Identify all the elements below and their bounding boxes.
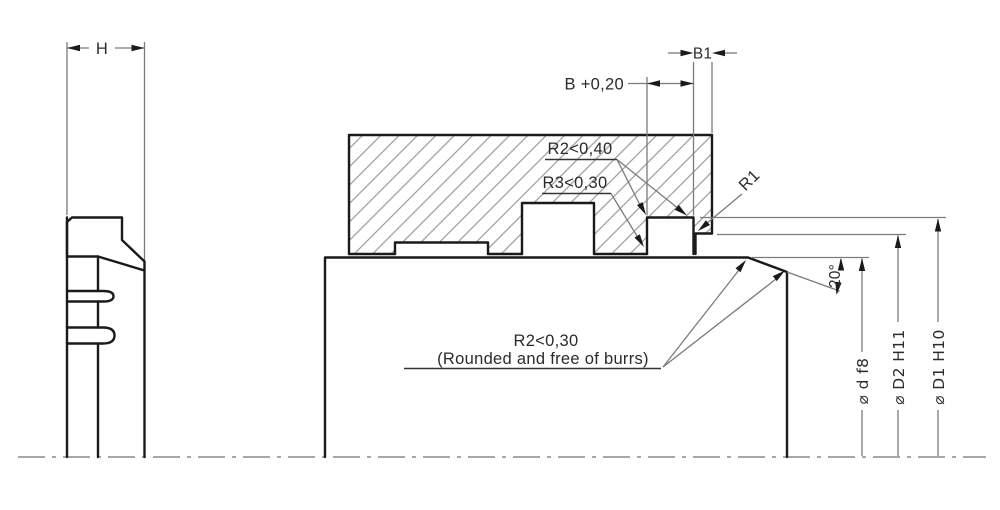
rod-diameter-label: ⌀ d f8	[854, 358, 872, 405]
r3-groove-label: R3<0,30	[543, 174, 608, 192]
d1-diameter-label: ⌀ D1 H10	[930, 329, 948, 405]
h-dimension-label: H	[96, 40, 108, 58]
chamfer-angle-label: 20°	[827, 264, 844, 288]
r2-groove-label: R2<0,40	[548, 140, 613, 158]
burr-note-line2: (Rounded and free of burrs)	[437, 350, 649, 368]
bore-recess-cutout	[395, 243, 488, 255]
b-dimension-label: B +0,20	[565, 76, 624, 94]
technical-drawing-canvas: H	[0, 0, 1000, 510]
b1-dimension-label: B1	[693, 46, 712, 63]
seal-groove-cutout	[647, 218, 694, 255]
burr-note-line1: R2<0,30	[514, 332, 579, 350]
center-groove-cutout	[522, 203, 594, 254]
d2-diameter-label: ⌀ D2 H11	[890, 329, 908, 405]
technical-drawing-page: H	[0, 0, 1000, 510]
